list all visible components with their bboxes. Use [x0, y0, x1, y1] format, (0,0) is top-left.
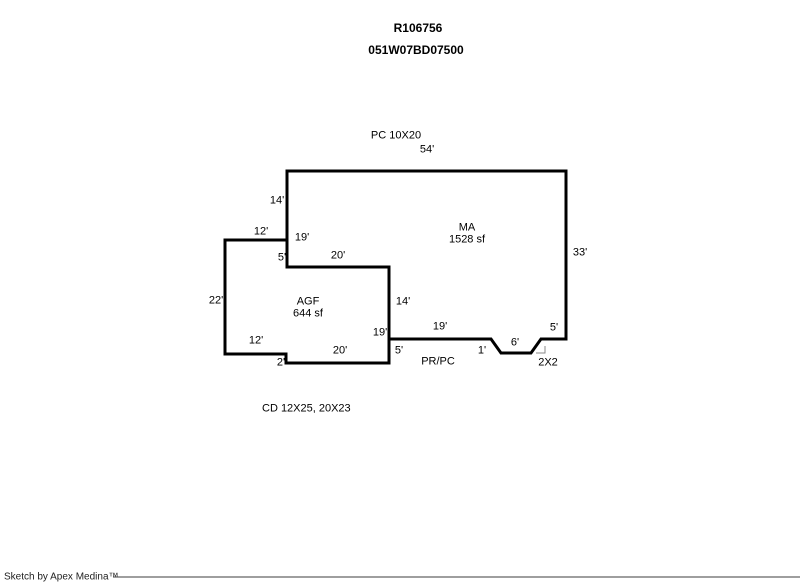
- dim-bottom-20: 20': [333, 346, 347, 357]
- dim-far-left-22: 22': [209, 296, 223, 307]
- dim-left-5: 5': [278, 253, 286, 264]
- dim-notch-5: 5': [550, 323, 558, 334]
- dim-agf-19: 19': [373, 328, 387, 339]
- area-label-ma: MA: [459, 223, 476, 234]
- dim-notch-1: 1': [478, 346, 486, 357]
- ma-outline-wall: [287, 171, 566, 353]
- area-size-agf: 644 sf: [293, 309, 323, 320]
- dim-agf-right-14: 14': [396, 297, 410, 308]
- dim-right-33: 33': [573, 248, 587, 259]
- dim-mid-20: 20': [331, 251, 345, 262]
- area-label-agf: AGF: [297, 297, 320, 308]
- dim-porch-5: 5': [395, 346, 403, 357]
- area-size-ma: 1528 sf: [449, 235, 485, 246]
- dim-bottom-19: 19': [433, 322, 447, 333]
- dim-top-54: 54': [420, 145, 434, 156]
- floorplan-drawing: [0, 0, 800, 587]
- sketch-credit: Sketch by Apex Medina™: [4, 572, 119, 583]
- property-sketch-page: R106756 051W07BD07500 PC 10X20 54' 14' 1…: [0, 0, 800, 587]
- notch-cut-label: 2X2: [538, 358, 558, 369]
- dim-left-19: 19': [295, 233, 309, 244]
- porch-code-label: PR/PC: [421, 357, 455, 368]
- pc-area-note: PC 10X20: [371, 131, 421, 142]
- dim-left-12: 12': [254, 227, 268, 238]
- dim-bottom-2: 2': [277, 358, 285, 369]
- dim-left-14: 14': [270, 196, 284, 207]
- cd-area-note: CD 12X25, 20X23: [262, 404, 351, 415]
- dim-notch-6: 6': [511, 338, 519, 349]
- dim-bottom-12: 12': [249, 336, 263, 347]
- notch-corner-mark-icon: [536, 346, 545, 353]
